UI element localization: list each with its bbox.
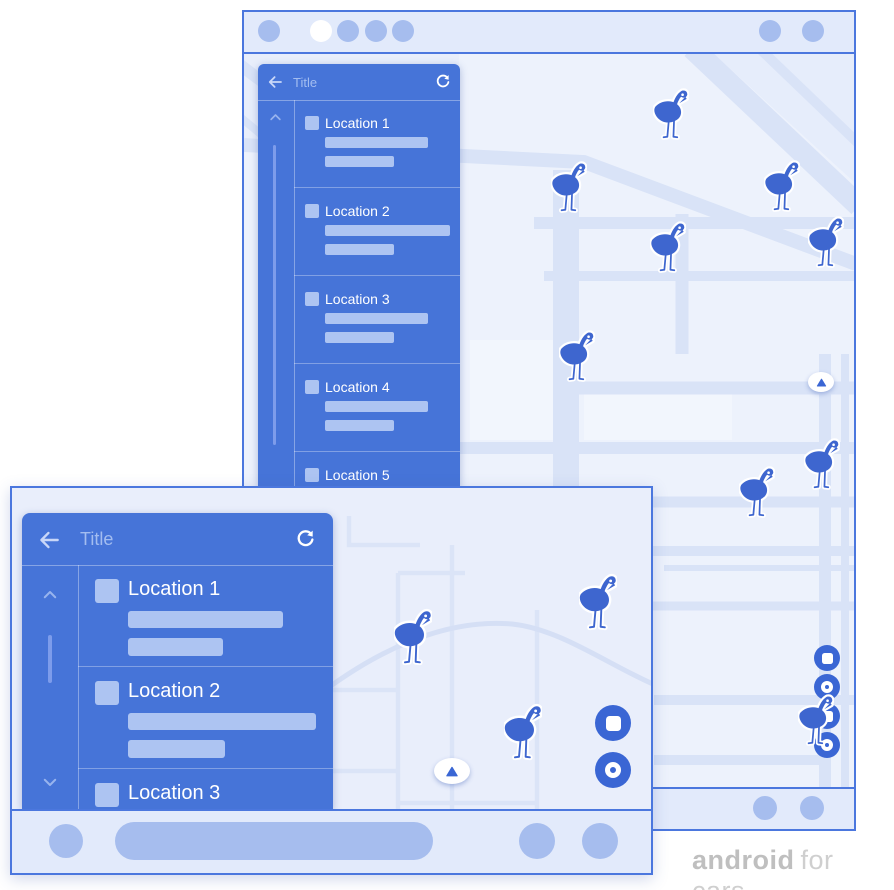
flamingo-marker[interactable] (808, 216, 844, 270)
watermark: androidfor cars (692, 845, 894, 890)
place-icon (305, 380, 319, 394)
scroll-rail (22, 565, 79, 809)
flamingo-marker[interactable] (764, 160, 800, 214)
square-icon (822, 653, 833, 664)
panel-header: Title (22, 513, 333, 566)
panel-title: Title (293, 75, 317, 90)
place-name: Location 1 (128, 578, 220, 601)
status-dot-active (310, 20, 332, 42)
text-placeholder-bar (128, 611, 283, 628)
text-placeholder-bar (325, 244, 394, 255)
nav-dot (49, 824, 83, 858)
status-dot (392, 20, 414, 42)
text-placeholder-bar (128, 713, 316, 730)
place-name: Location 2 (325, 203, 390, 219)
place-list-item[interactable]: Location 2 (294, 188, 460, 276)
text-placeholder-bar (128, 740, 225, 758)
flamingo-marker[interactable] (504, 701, 542, 765)
place-list-item[interactable]: Location 5 (294, 452, 460, 488)
status-dot (759, 20, 781, 42)
flamingo-marker[interactable] (739, 466, 775, 520)
place-list-item[interactable]: Location 3 (78, 769, 333, 809)
compass-button[interactable] (434, 758, 470, 784)
place-icon (305, 116, 319, 130)
map-action-button-square[interactable] (814, 645, 840, 671)
text-placeholder-bar (325, 332, 394, 343)
status-dot (258, 20, 280, 42)
status-dot (365, 20, 387, 42)
navigation-arrow-icon (444, 765, 460, 778)
place-list-item[interactable]: Location 2 (78, 667, 333, 769)
text-placeholder-bar (325, 137, 428, 148)
map-action-button-circle[interactable] (595, 752, 631, 788)
bottom-bar (12, 809, 651, 873)
scrollbar-thumb[interactable] (48, 635, 52, 683)
map-canvas-landscape[interactable]: Title (12, 488, 651, 809)
scrollbar-thumb[interactable] (273, 145, 276, 445)
status-bar (244, 12, 854, 54)
place-name: Location 3 (128, 782, 220, 805)
nav-pill (115, 822, 433, 860)
flamingo-marker[interactable] (551, 161, 587, 215)
chevron-up-icon[interactable] (41, 586, 59, 604)
flamingo-marker[interactable] (559, 330, 595, 384)
place-name: Location 4 (325, 379, 390, 395)
scroll-rail (258, 100, 295, 488)
watermark-brand: android (692, 845, 795, 875)
text-placeholder-bar (325, 401, 428, 412)
place-icon (305, 204, 319, 218)
refresh-icon[interactable] (294, 528, 317, 551)
status-dot (337, 20, 359, 42)
place-list-item[interactable]: Location 4 (294, 364, 460, 452)
place-list-panel: Title Location 1 (258, 64, 460, 488)
landscape-head-unit-frame: Title (10, 486, 653, 875)
place-name: Location 3 (325, 291, 390, 307)
place-icon (95, 783, 119, 807)
place-name: Location 1 (325, 115, 390, 131)
nav-dot (800, 796, 824, 820)
map-action-button-square[interactable] (595, 705, 631, 741)
navigation-arrow-icon (815, 377, 828, 388)
place-list-item[interactable]: Location 1 (294, 100, 460, 188)
text-placeholder-bar (128, 638, 223, 656)
flamingo-marker[interactable] (798, 694, 834, 748)
place-list-item[interactable]: Location 3 (294, 276, 460, 364)
text-placeholder-bar (325, 156, 394, 167)
status-dot (802, 20, 824, 42)
flamingo-marker[interactable] (653, 88, 689, 142)
chevron-down-icon[interactable] (41, 773, 59, 791)
place-icon (95, 579, 119, 603)
place-name: Location 2 (128, 680, 220, 703)
chevron-up-icon[interactable] (268, 110, 283, 125)
compass-button[interactable] (808, 372, 834, 392)
place-icon (95, 681, 119, 705)
place-icon (305, 468, 319, 482)
flamingo-marker[interactable] (650, 221, 686, 275)
place-name: Location 5 (325, 467, 390, 483)
square-icon (606, 716, 621, 731)
flamingo-marker[interactable] (394, 606, 432, 670)
circle-icon (605, 762, 621, 778)
place-icon (305, 292, 319, 306)
place-list-panel: Title (22, 513, 333, 809)
arrow-left-icon[interactable] (36, 527, 62, 553)
arrow-left-icon[interactable] (266, 73, 284, 91)
refresh-icon[interactable] (434, 73, 452, 91)
flamingo-marker[interactable] (579, 571, 617, 635)
nav-dot (582, 823, 618, 859)
circle-icon (821, 681, 833, 693)
nav-dot (519, 823, 555, 859)
panel-title: Title (80, 529, 113, 550)
canvas: Title Location 1 (0, 0, 894, 890)
nav-dot (753, 796, 777, 820)
flamingo-marker[interactable] (804, 438, 840, 492)
text-placeholder-bar (325, 313, 428, 324)
text-placeholder-bar (325, 420, 394, 431)
panel-header: Title (258, 64, 460, 101)
text-placeholder-bar (325, 225, 450, 236)
place-list-item[interactable]: Location 1 (78, 565, 333, 667)
